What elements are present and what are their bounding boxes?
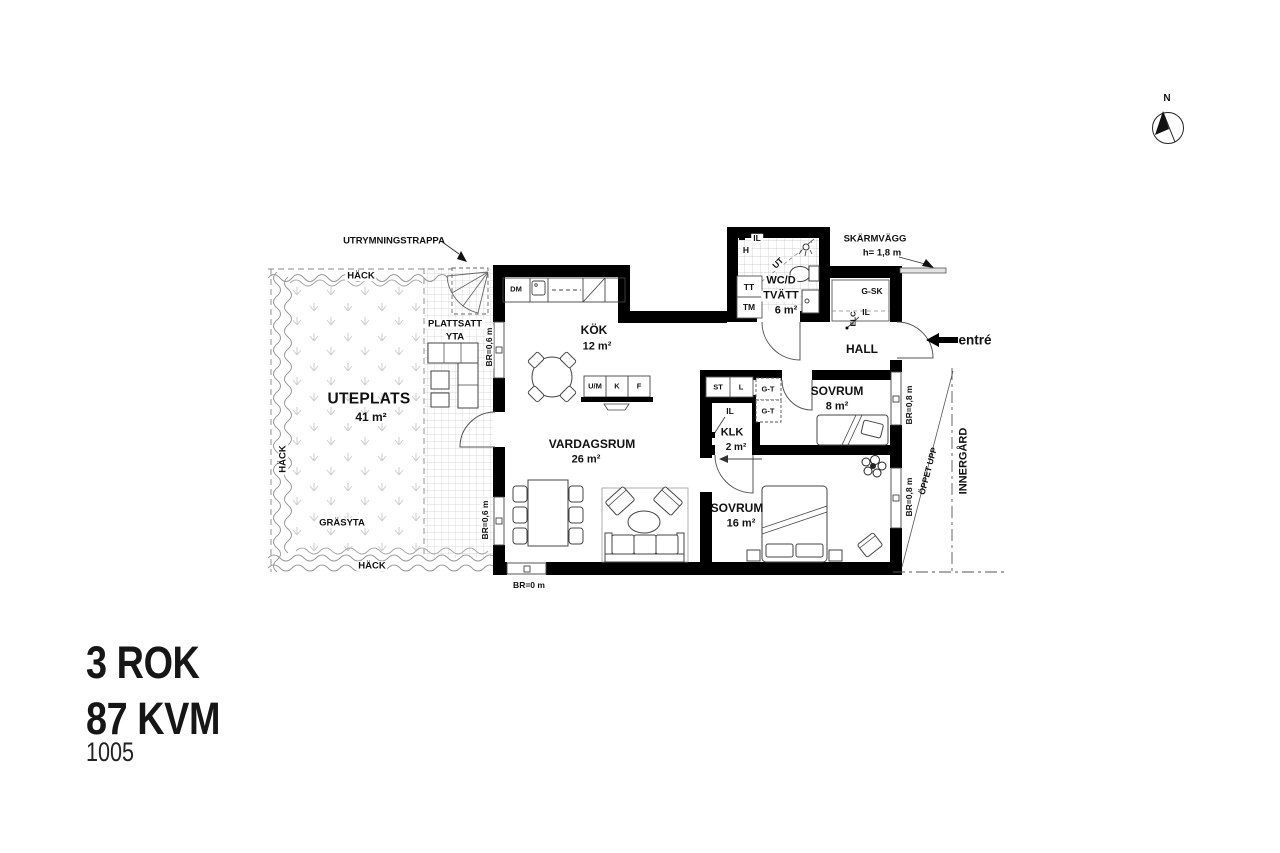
wc-name-1: WC/D [764,276,797,287]
escape-stairs-label: UTRYMNINGSTRAPPA [343,236,445,246]
bedroom8-name: SOVRUM [811,385,864,397]
compass-icon [1153,111,1184,144]
washer-label: TM [741,303,757,312]
dining-set [513,480,583,546]
oven-micro-label: U/M [588,382,602,390]
hedge-label-left: HÄCK [278,443,288,474]
br-left-2: BR=0,6 m [481,499,490,542]
freezer-label: F [637,382,642,390]
wc-area: 6 m² [773,306,800,317]
il-label-klk: IL [726,407,734,416]
bedroom16-entry-arrow [719,455,762,463]
sofa-set [602,486,688,562]
kitchen-area: 12 m² [583,342,612,353]
gsk-label: G-SK [861,287,882,296]
wc-name-2: TVÄTT [761,291,800,302]
fridge-label: K [614,382,619,390]
st-label: ST [713,383,723,391]
br-bottom: BR=0 m [513,581,545,590]
title-unit-number: 1005 [86,739,134,766]
hall-name: HALL [846,343,878,355]
wardrobe-label-2: G-T [760,407,777,415]
paved-label-1: PLATTSATT [426,319,484,329]
paved-label-2: YTA [444,332,466,342]
h-label-wc: H [741,246,751,255]
hedge-label-bottom: HÄCK [356,561,387,571]
bedroom16-name: SOVRUM [711,502,764,514]
bed-single [817,415,888,445]
armchair-bedroom [857,533,883,558]
plant [862,456,886,478]
bed-double [747,486,842,562]
entrance-label: entré [958,333,991,347]
uteplats-name: UTEPLATS [327,391,410,407]
dishwasher-label: DM [508,285,524,293]
il-label-wc: IL [751,234,763,243]
kitchen-name: KÖK [581,324,608,336]
title-rooms: 3 ROK [86,640,199,685]
dryer-label: TT [742,283,756,292]
br-right-2: BR=0,8 m [905,476,914,519]
hedge-label-top: HÄCK [345,271,376,281]
title-area: 87 KVM [86,696,220,741]
l-label: L [739,383,744,391]
bedroom16-area: 16 m² [727,519,756,530]
livingroom-area: 26 m² [572,455,601,466]
br-left-1: BR=0,6 m [485,326,494,369]
compass-north-label: N [1163,94,1170,104]
elc-label: ELC [849,312,857,327]
klk-name: KLK [721,428,744,439]
livingroom-name: VARDAGSRUM [549,438,635,450]
br-right-1: BR=0,8 m [905,384,914,427]
il-label-hall: IL [862,308,870,317]
bedroom8-area: 8 m² [826,402,849,413]
screen-wall-label: SKÄRMVÄGG [844,234,907,244]
courtyard-label: INNERGÅRD [959,428,970,495]
screen-wall-height: h= 1,8 m [863,248,901,258]
grass-label: GRÄSYTA [317,518,367,528]
klk-area: 2 m² [726,443,747,453]
screen-wall [899,257,946,273]
uteplats-area: 41 m² [355,411,386,423]
wardrobe-label-1: G-T [760,385,777,393]
kitchen-table [528,352,577,403]
